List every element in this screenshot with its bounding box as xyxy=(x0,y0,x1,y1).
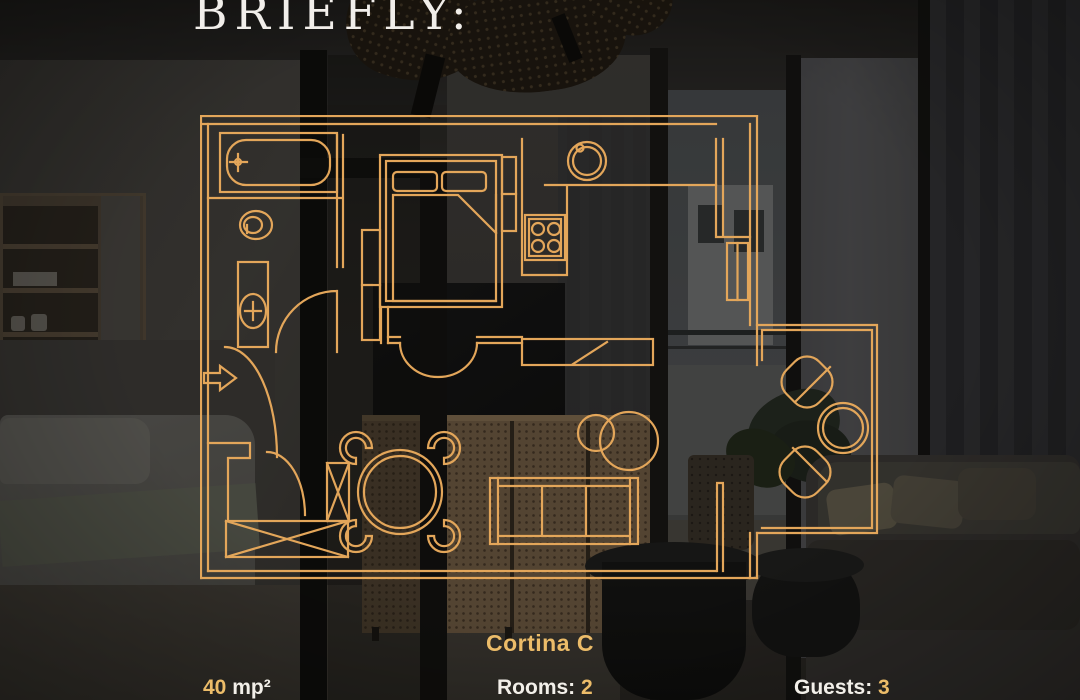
livingroom-wall-stub xyxy=(717,483,723,571)
wardrobe-icon xyxy=(226,463,349,557)
stat-area: 40 mp² xyxy=(203,676,271,700)
stat-rooms: Rooms: 2 xyxy=(497,676,593,700)
entry-door-swing-icon xyxy=(225,347,277,457)
rooms-value: 2 xyxy=(581,676,593,699)
stove-icon xyxy=(525,215,565,260)
door-swing-icon xyxy=(400,343,477,377)
plan-name: Cortina C xyxy=(0,630,1080,657)
sofa-icon xyxy=(490,478,638,544)
tv-unit-icon xyxy=(522,339,653,365)
toilet-icon xyxy=(240,211,272,239)
balcony-table-icon xyxy=(818,403,868,453)
kitchen-sink-icon xyxy=(568,142,606,180)
hall-door-swing-icon xyxy=(267,452,305,515)
stat-guests: Guests: 3 xyxy=(794,676,890,700)
area-unit: mp² xyxy=(226,676,270,699)
entry-nook-wall xyxy=(208,443,250,521)
kitchen-counter xyxy=(522,139,716,275)
bed-icon xyxy=(380,155,502,307)
divider-wall xyxy=(388,337,522,343)
guests-value: 3 xyxy=(878,676,890,699)
washbasin-icon xyxy=(238,262,268,347)
bathtub-icon xyxy=(220,133,337,192)
window-icon xyxy=(727,243,748,300)
listing-slide: BRIEFLY: Cortina C 40 mp² Rooms: 2 Guest… xyxy=(0,0,1080,700)
floor-plan xyxy=(200,115,880,585)
balcony-armchairs-icon xyxy=(772,349,839,504)
rooms-label: Rooms: xyxy=(497,676,581,699)
dining-table-icon xyxy=(358,450,442,534)
bathroom-door-swing-icon xyxy=(276,291,337,352)
coffee-tables-icon xyxy=(578,412,658,470)
dining-chair-icon xyxy=(333,425,466,558)
page-title: BRIEFLY: xyxy=(193,0,474,41)
guests-label: Guests: xyxy=(794,676,878,699)
area-value: 40 xyxy=(203,676,226,699)
